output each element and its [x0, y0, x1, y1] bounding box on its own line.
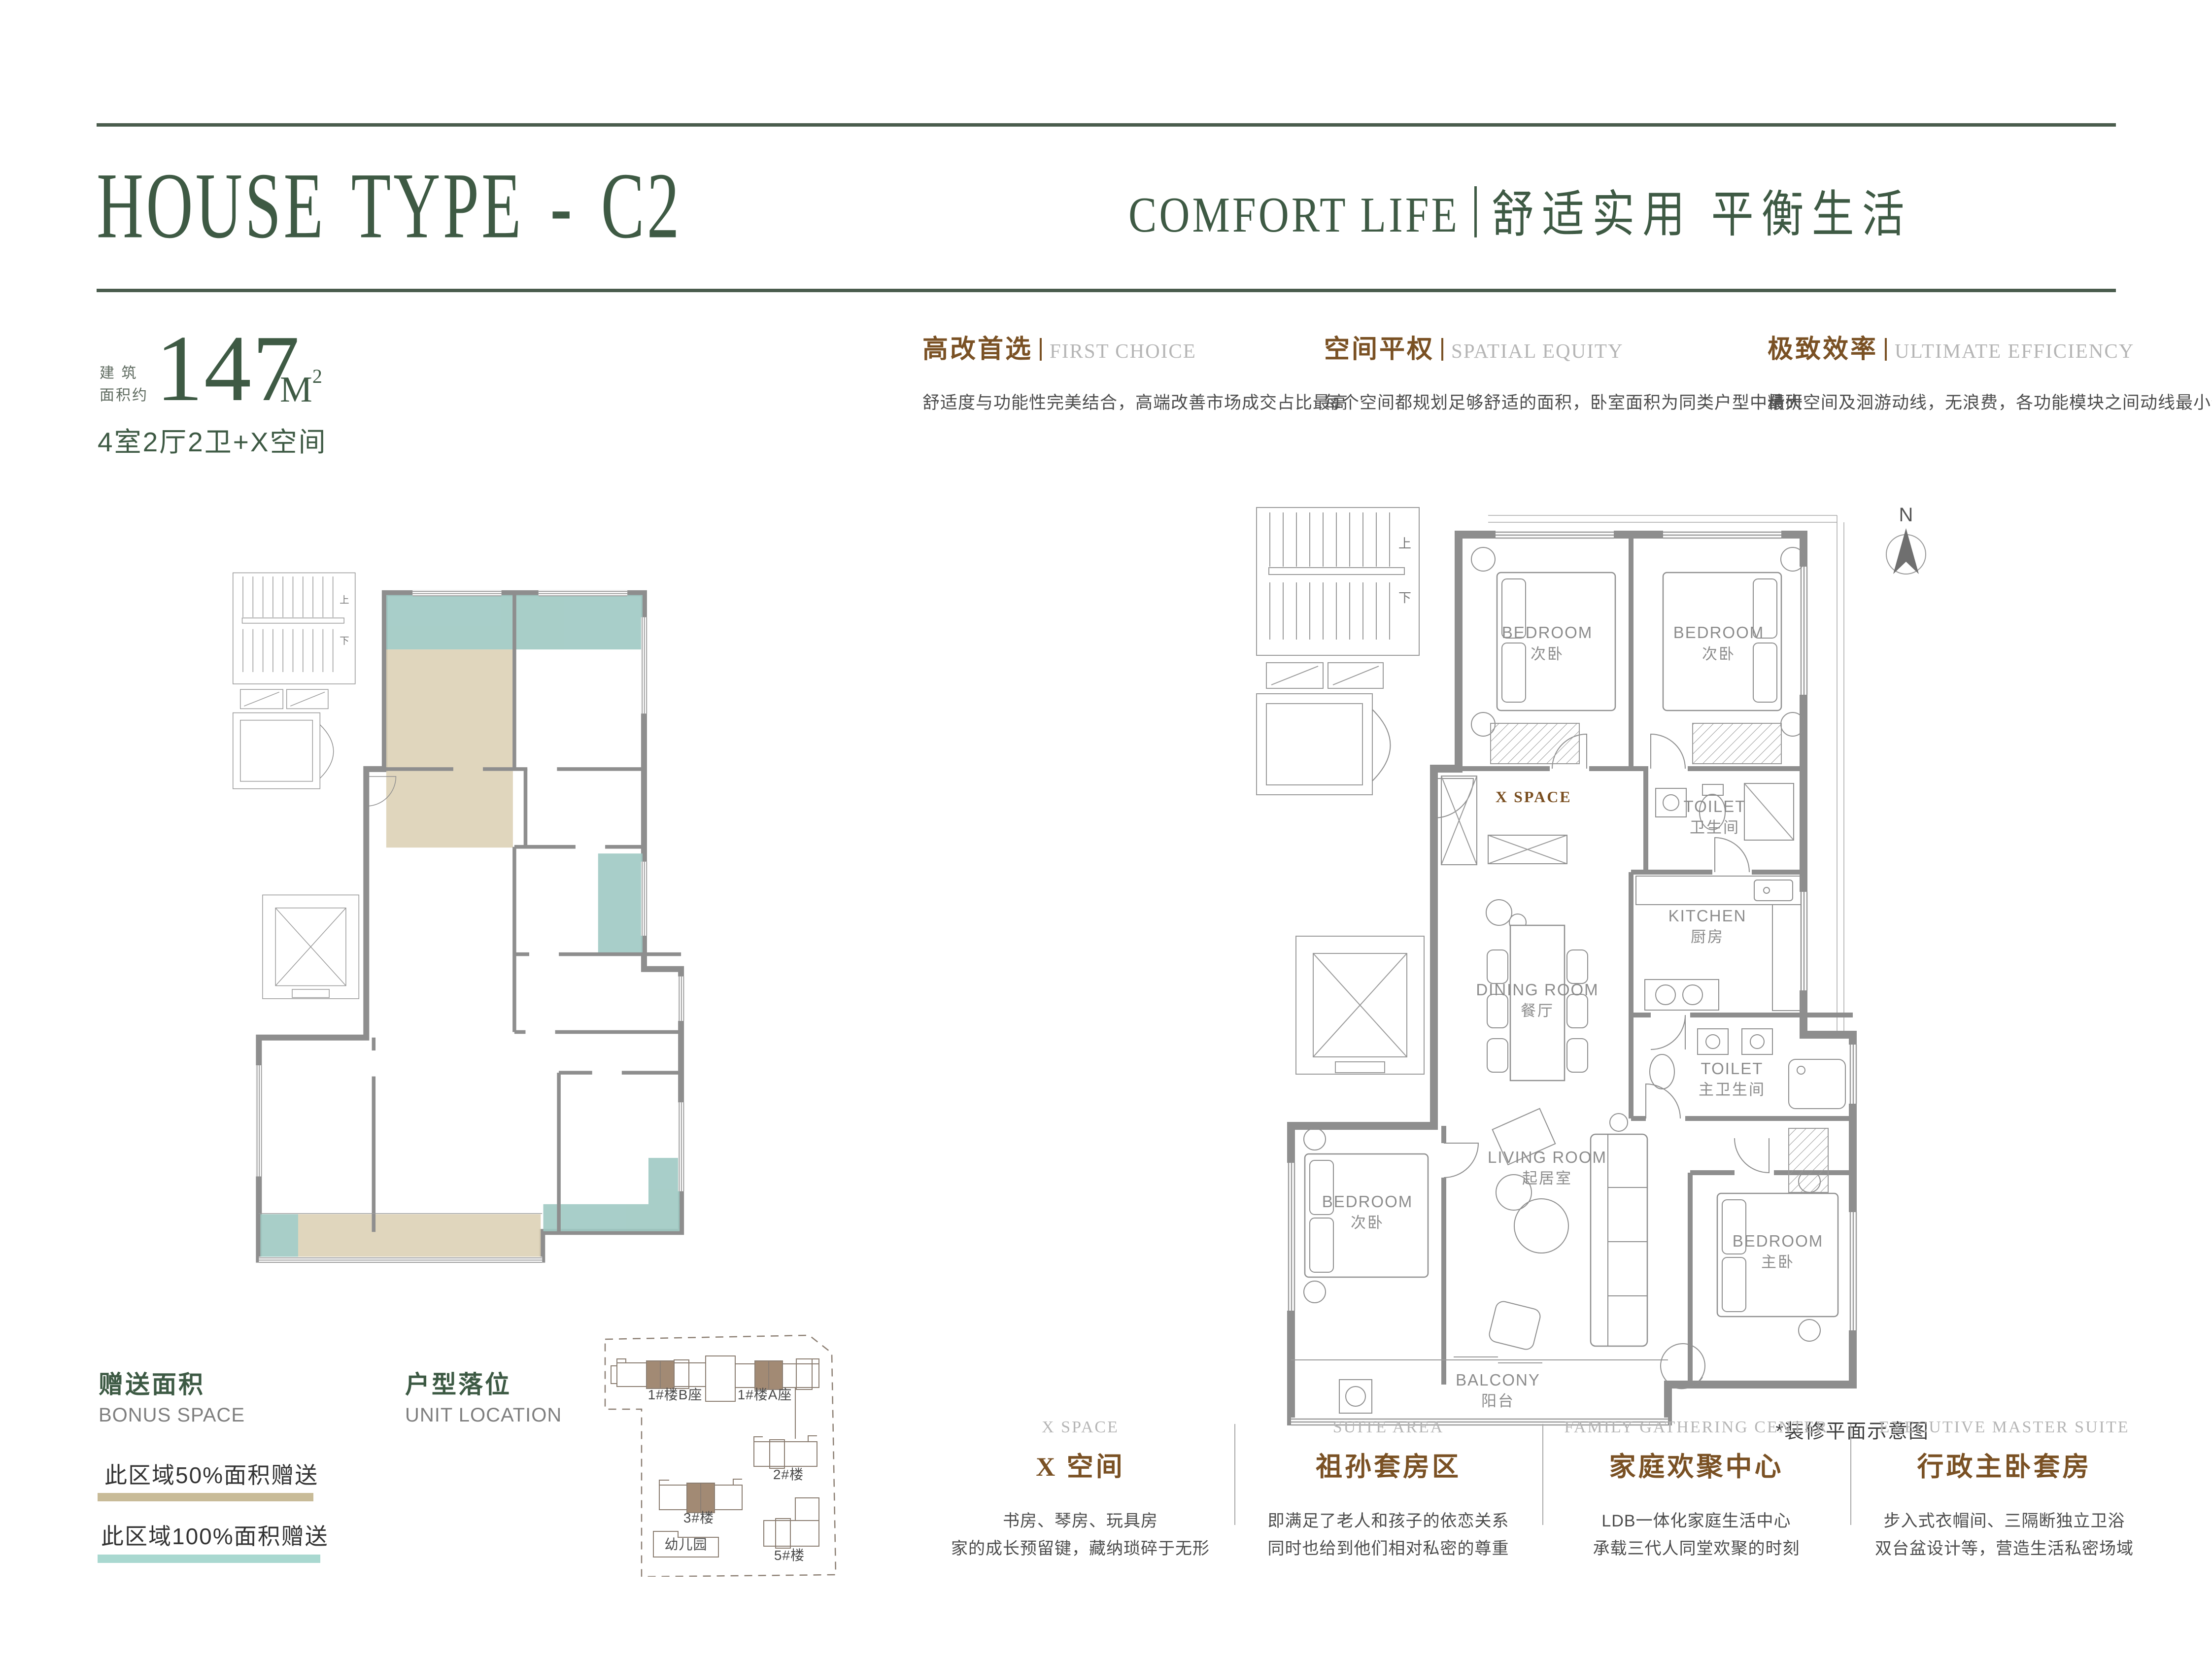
feature-en: ULTIMATE EFFICIENCY [1895, 339, 2134, 362]
bfeature-line2: 家的成长预留键，藏纳琐碎于无形 [931, 1535, 1229, 1562]
furnished-floorplan: 上 下 [1222, 493, 1937, 1449]
tagline: COMFORT LIFE舒适实用 平衡生活 [1128, 186, 1912, 240]
area-value: 147 [156, 321, 301, 416]
feature-divider [1441, 338, 1443, 361]
legend-50-bar [98, 1493, 313, 1501]
bfeature-cn: 家庭欢聚中心 [1547, 1445, 1845, 1484]
bottom-feature-x-space: X SPACE X 空间 书房、琴房、玩具房 家的成长预留键，藏纳琐碎于无形 [926, 1418, 1234, 1562]
feature-divider [1040, 338, 1042, 361]
svg-text:1#楼B座: 1#楼B座 [648, 1387, 703, 1402]
bottom-feature-suite-area: SUITE AREA 祖孙套房区 即满足了老人和孩子的依恋关系 同时也给到他们相… [1234, 1418, 1542, 1562]
bfeature-en: X SPACE [931, 1418, 1229, 1437]
svg-text:下: 下 [340, 636, 349, 646]
bfeature-en: FAMILY GATHERING CENTER [1547, 1418, 1845, 1437]
svg-text:5#楼: 5#楼 [774, 1548, 805, 1563]
svg-text:餐厅: 餐厅 [1521, 1002, 1554, 1019]
page-title: HOUSE TYPE - C2 [97, 159, 682, 253]
bfeature-cn: 祖孙套房区 [1239, 1445, 1537, 1484]
building-3: 3#楼 [659, 1479, 742, 1525]
bfeature-line1: LDB一体化家庭生活中心 [1547, 1507, 1845, 1535]
bfeature-en: EXECUTIVE MASTER SUITE [1855, 1418, 2153, 1437]
svg-text:主卧: 主卧 [1761, 1253, 1795, 1271]
svg-text:BEDROOM: BEDROOM [1322, 1192, 1413, 1211]
svg-text:BEDROOM: BEDROOM [1502, 623, 1593, 642]
feature-desc: 舒适度与功能性完美结合，高端改善市场成交占比最高 [922, 389, 1348, 414]
bonus-space-title-cn: 赠送面积 [99, 1365, 205, 1400]
page: { "header": { "title": "HOUSE TYPE - C2"… [0, 0, 2212, 1659]
bfeature-line2: 双台盆设计等，营造生活私密场域 [1855, 1535, 2153, 1562]
svg-text:次卧: 次卧 [1531, 645, 1564, 663]
svg-text:上: 上 [340, 595, 349, 606]
bfeature-en: SUITE AREA [1239, 1418, 1537, 1437]
elevator-shaft [263, 895, 359, 998]
feature-first-choice: 高改首选FIRST CHOICE 舒适度与功能性完美结合，高端改善市场成交占比最… [922, 328, 1348, 414]
unit-location-title-en: UNIT LOCATION [405, 1404, 562, 1426]
area-unit-sup: 2 [312, 365, 322, 387]
bonus-floorplan: 上 下 [207, 562, 744, 1280]
stairwell: 上 下 [1257, 508, 1419, 795]
svg-text:次卧: 次卧 [1351, 1214, 1384, 1231]
svg-text:TOILET: TOILET [1701, 1059, 1764, 1078]
area-layout: 4室2厅2卫+X空间 [98, 420, 327, 459]
building-1a: 1#楼A座 [735, 1359, 819, 1439]
legend-100-bar [98, 1555, 320, 1563]
area-label: 建 筑 面积约 [100, 362, 148, 406]
header-bottom-rule [97, 289, 2116, 292]
svg-text:卫生间: 卫生间 [1690, 819, 1740, 836]
building-center [706, 1356, 735, 1401]
tagline-divider [1474, 186, 1477, 237]
feature-desc: 精研空间及洄游动线，无浪费，各功能模块之间动线最小化 [1768, 389, 2212, 414]
bfeature-line2: 承载三代人同堂欢聚的时刻 [1547, 1535, 1845, 1562]
bfeature-line1: 即满足了老人和孩子的依恋关系 [1239, 1507, 1537, 1535]
bfeature-line2: 同时也给到他们相对私密的尊重 [1239, 1535, 1537, 1562]
site-plan: 1#楼B座 1#楼A座 2#楼 3#楼 幼儿园 5#楼 [591, 1324, 867, 1577]
svg-text:幼儿园: 幼儿园 [664, 1537, 707, 1552]
feature-desc: 每个空间都规划足够舒适的面积，卧室面积为同类户型中最大 [1324, 389, 1803, 414]
area-label-line1: 建 筑 [100, 362, 148, 384]
svg-text:N: N [1899, 504, 1913, 526]
svg-text:1#楼A座: 1#楼A座 [738, 1387, 792, 1402]
tagline-en: COMFORT LIFE [1128, 187, 1460, 242]
bottom-feature-family-center: FAMILY GATHERING CENTER 家庭欢聚中心 LDB一体化家庭生… [1542, 1418, 1850, 1562]
feature-cn: 高改首选 [922, 336, 1033, 364]
bottom-feature-master-suite: EXECUTIVE MASTER SUITE 行政主卧套房 步入式衣帽间、三隔断… [1850, 1418, 2158, 1562]
svg-text:次卧: 次卧 [1702, 645, 1736, 663]
bonus-space-title-en: BONUS SPACE [99, 1404, 245, 1426]
svg-text:TOILET: TOILET [1684, 797, 1746, 815]
svg-text:KITCHEN: KITCHEN [1668, 907, 1747, 925]
svg-text:2#楼: 2#楼 [773, 1467, 804, 1482]
legend-50-label: 此区域50%面积赠送 [104, 1457, 318, 1490]
area-label-line2: 面积约 [100, 384, 148, 406]
svg-text:3#楼: 3#楼 [683, 1510, 714, 1525]
svg-text:DINING ROOM: DINING ROOM [1476, 981, 1599, 999]
svg-text:BALCONY: BALCONY [1456, 1371, 1540, 1389]
building-5: 5#楼 [764, 1498, 819, 1563]
svg-text:主卫生间: 主卫生间 [1699, 1081, 1766, 1098]
bfeature-cn: 行政主卧套房 [1855, 1445, 2153, 1484]
site-boundary [605, 1335, 836, 1577]
svg-text:阳台: 阳台 [1481, 1392, 1515, 1410]
north-arrow-icon: N [1886, 504, 1926, 574]
feature-spatial-equity: 空间平权SPATIAL EQUITY 每个空间都规划足够舒适的面积，卧室面积为同… [1324, 328, 1803, 414]
bfeature-line1: 步入式衣帽间、三隔断独立卫浴 [1855, 1507, 2153, 1535]
feature-cn: 空间平权 [1324, 336, 1434, 364]
svg-text:起居室: 起居室 [1522, 1170, 1572, 1187]
svg-text:BEDROOM: BEDROOM [1733, 1232, 1824, 1250]
svg-text:厨房: 厨房 [1691, 928, 1724, 946]
unit-location-title-cn: 户型落位 [405, 1365, 511, 1400]
bfeature-line1: 书房、琴房、玩具房 [931, 1507, 1229, 1535]
svg-text:上: 上 [1398, 536, 1411, 551]
feature-divider [1885, 338, 1887, 361]
tagline-cn: 舒适实用 平衡生活 [1492, 187, 1912, 242]
legend-100-label: 此区域100%面积赠送 [101, 1519, 329, 1551]
feature-ultimate-efficiency: 极致效率ULTIMATE EFFICIENCY 精研空间及洄游动线，无浪费，各功… [1768, 328, 2212, 414]
feature-cn: 极致效率 [1768, 336, 1878, 364]
stairwell: 上 下 [233, 573, 355, 789]
svg-text:LIVING ROOM: LIVING ROOM [1488, 1148, 1607, 1166]
bottom-features: X SPACE X 空间 书房、琴房、玩具房 家的成长预留键，藏纳琐碎于无形 S… [926, 1418, 2158, 1562]
feature-en: FIRST CHOICE [1050, 339, 1196, 362]
building-1b: 1#楼B座 [611, 1359, 706, 1402]
kindergarten: 幼儿园 [653, 1531, 718, 1557]
svg-text:下: 下 [1398, 590, 1411, 605]
feature-en: SPATIAL EQUITY [1451, 339, 1624, 362]
area-unit: M2 [280, 365, 322, 411]
svg-text:X SPACE: X SPACE [1496, 788, 1572, 806]
top-rule [97, 123, 2116, 127]
bfeature-cn: X 空间 [931, 1445, 1229, 1484]
elevator-shaft [1296, 936, 1424, 1074]
building-2: 2#楼 [754, 1436, 817, 1482]
svg-text:BEDROOM: BEDROOM [1673, 623, 1765, 642]
